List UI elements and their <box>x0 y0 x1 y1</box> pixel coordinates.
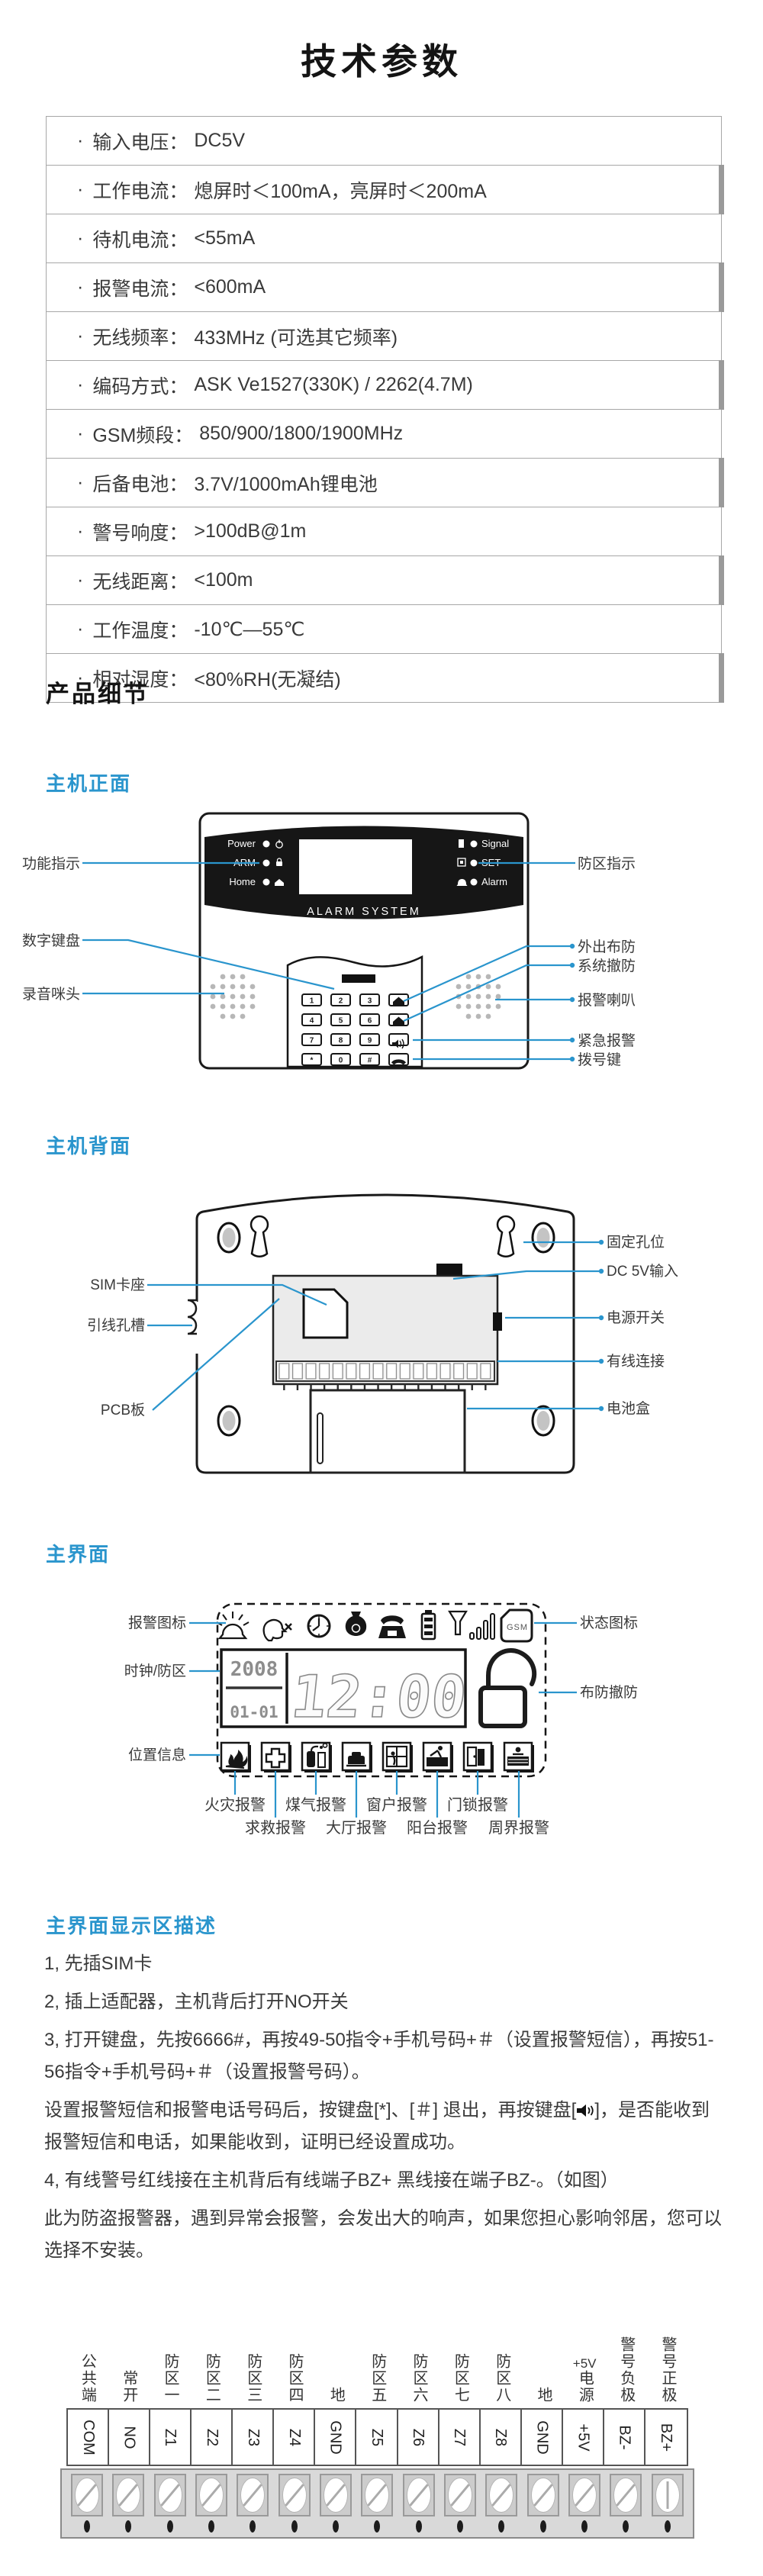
timer-icon <box>308 1615 330 1637</box>
table-row: ·报警电流：<600mA <box>47 262 721 311</box>
spec-value: 3.7V/1000mAh锂电池 <box>194 469 377 497</box>
key-hash: # <box>368 1057 372 1065</box>
terminal-screw <box>191 2470 232 2537</box>
terminal-diagram: 公共端 常开 防区一 防区二 防区三 防区四 地 防区五 防区六 防区七 防区八… <box>60 2326 694 2539</box>
fire-alarm-icon <box>221 1743 251 1773</box>
key-7: 7 <box>310 1037 314 1045</box>
callout-sim-holder: SIM卡座 <box>90 1277 145 1293</box>
table-row: ·GSM频段：850/900/1800/1900MHz <box>47 409 721 458</box>
instruction-step-4: 4, 有线警号红线接在主机背后有线端子BZ+ 黑线接在端子BZ-。（如图） <box>44 2165 722 2197</box>
lcd-date: 01-01 <box>230 1703 278 1721</box>
callout-zone-indicators: 防区指示 <box>578 855 636 872</box>
row-bullet: · <box>77 325 83 347</box>
callout-function-indicators: 功能指示 <box>22 855 80 872</box>
set-led <box>471 860 478 867</box>
key-9: 9 <box>368 1037 372 1045</box>
terminal-pin: Z4 <box>274 2410 315 2465</box>
section-heading-front: 主机正面 <box>46 768 131 797</box>
battery-icon <box>422 1610 435 1639</box>
power-led <box>263 841 270 848</box>
callout-pcb: PCB板 <box>101 1402 145 1418</box>
zone-label-gas: 煤气报警 <box>285 1796 346 1814</box>
dc-input-jack <box>436 1264 462 1276</box>
callout-dots <box>570 944 575 1061</box>
section-heading-back: 主机背面 <box>46 1131 131 1159</box>
callout-alarm-speaker: 报警喇叭 <box>578 992 636 1009</box>
instruction-step-1: 1, 先插SIM卡 <box>44 1948 722 1980</box>
spec-value: DC5V <box>194 130 245 152</box>
signal-led <box>471 841 478 848</box>
perimeter-alarm-icon <box>504 1743 534 1773</box>
zone-label-sos: 求救报警 <box>245 1819 306 1837</box>
sos-alarm-icon <box>262 1743 291 1773</box>
page-title: 技术参数 <box>0 32 763 85</box>
terminal-cn-label: 防区一 <box>163 2353 178 2404</box>
row-bullet: · <box>77 227 83 250</box>
callout-dc-input: DC 5V输入 <box>607 1263 678 1280</box>
terminal-cn-label: 防区六 <box>411 2353 427 2404</box>
gas-alarm-icon <box>302 1743 332 1773</box>
key-6: 6 <box>368 1017 372 1026</box>
terminal-cn-label: 防区五 <box>369 2353 385 2404</box>
terminal-pin: Z2 <box>192 2410 233 2465</box>
terminal-screw <box>356 2470 398 2537</box>
terminal-cn-label: 防区三 <box>245 2353 260 2404</box>
callout-dots <box>599 1240 604 1411</box>
terminal-cn-label: +5V电源 <box>573 2357 597 2404</box>
instruction-step-3: 3, 打开键盘，先按6666#，再按49-50指令+手机号码+＃（设置报警短信）… <box>44 2024 722 2088</box>
terminal-pin: Z6 <box>398 2410 439 2465</box>
spec-label: 后备电池： <box>92 469 188 497</box>
zone-label-hall: 大厅报警 <box>326 1819 387 1837</box>
spec-value: <55mA <box>194 227 255 250</box>
terminal-pin: COM <box>68 2410 109 2465</box>
row-bullet: · <box>77 276 83 298</box>
brand-text: ALARM SYSTEM <box>307 906 421 918</box>
instruction-step-2: 2, 插上适配器，主机背后打开NO开关 <box>44 1986 722 2018</box>
instructions-block: 1, 先插SIM卡 2, 插上适配器，主机背后打开NO开关 3, 打开键盘，先按… <box>44 1948 722 2273</box>
spec-value: <80%RH(无凝结) <box>194 665 340 692</box>
spec-value: >100dB@1m <box>194 520 306 543</box>
key-1: 1 <box>310 997 314 1006</box>
spec-label: GSM频段： <box>92 420 193 448</box>
alarm-host-back: SIM卡座 引线孔槽 PCB板 固定孔位 DC 5V输入 电源开关 有线连接 电… <box>87 1195 678 1473</box>
key-5: 5 <box>339 1017 343 1026</box>
gsm-sim-icon: GSM <box>501 1610 532 1641</box>
spec-value: 433MHz (可选其它频率) <box>194 323 398 350</box>
terminal-pin: GND <box>522 2410 563 2465</box>
led-label-signal: Signal <box>481 838 509 849</box>
signal-icon <box>459 839 464 848</box>
led-label-power: Power <box>227 838 256 849</box>
callout-arm-disarm: 布防撤防 <box>580 1684 638 1701</box>
table-row: ·警号响度：>100dB@1m <box>47 507 721 555</box>
alarm-host-front: Power ARM Home Signal SET <box>22 813 636 1068</box>
window-alarm-icon <box>383 1743 413 1773</box>
terminal-pin: BZ+ <box>645 2410 687 2465</box>
door-lock-alarm-icon <box>464 1743 494 1773</box>
spec-label: 无线距离： <box>92 567 188 594</box>
callout-system-disarm: 系统撤防 <box>578 958 636 974</box>
table-row: ·待机电流：<55mA <box>47 214 721 262</box>
table-row: ·后备电池：3.7V/1000mAh锂电池 <box>47 458 721 507</box>
zone-label-fire: 火灾报警 <box>204 1796 266 1814</box>
zone-label-window: 窗户报警 <box>366 1796 427 1814</box>
terminal-screw <box>108 2470 149 2537</box>
terminal-cn-label: 防区二 <box>204 2353 219 2404</box>
callout-battery-box: 电池盒 <box>607 1400 650 1417</box>
callout-numeric-keypad: 数字键盘 <box>22 932 80 949</box>
terminal-screw <box>564 2470 605 2537</box>
zone-label-balcony: 阳台报警 <box>407 1819 468 1837</box>
row-bullet: · <box>77 423 83 445</box>
spec-value: ASK Ve1527(330K) / 2262(4.7M) <box>194 374 473 396</box>
spec-value: <100m <box>194 569 253 591</box>
key-2: 2 <box>339 997 343 1006</box>
terminal-cn-label: 防区四 <box>287 2353 302 2404</box>
callout-wired-connection: 有线连接 <box>607 1353 665 1370</box>
keypad-led-window <box>342 974 375 983</box>
terminal-cn-labels: 公共端 常开 防区一 防区二 防区三 防区四 地 防区五 防区六 防区七 防区八… <box>60 2326 694 2408</box>
terminal-screw <box>398 2470 439 2537</box>
terminal-pin: Z1 <box>150 2410 192 2465</box>
terminal-pin: Z3 <box>233 2410 274 2465</box>
terminal-cn-label: 地 <box>328 2387 343 2404</box>
terminal-cn-label: 公共端 <box>79 2353 95 2404</box>
speaker-icon <box>576 2103 594 2118</box>
row-bullet: · <box>77 472 83 494</box>
terminal-screw <box>66 2470 108 2537</box>
spec-table: ·输入电压：DC5V ·工作电流：熄屏时＜100mA，亮屏时＜200mA ·待机… <box>46 116 722 703</box>
terminal-pin: +5V <box>563 2410 604 2465</box>
callout-wire-slot: 引线孔槽 <box>87 1317 145 1334</box>
terminal-screw <box>605 2470 646 2537</box>
battery-box <box>311 1390 465 1473</box>
arm-led <box>263 860 270 867</box>
callout-mounting-holes: 固定孔位 <box>607 1234 665 1251</box>
callout-location-info: 位置信息 <box>128 1747 186 1763</box>
spec-label: 无线频率： <box>92 323 188 350</box>
terminal-screw <box>274 2470 315 2537</box>
spec-label: 待机电流： <box>92 225 188 253</box>
spec-label: 编码方式： <box>92 372 188 399</box>
spec-label: 工作电流： <box>92 176 188 204</box>
instruction-verify: 设置报警短信和报警电话号码后，按键盘[*]、[＃] 退出，再按键盘[]，是否能收… <box>44 2095 722 2159</box>
battery-box-slot <box>317 1413 323 1463</box>
row-bullet: · <box>77 179 83 201</box>
callout-power-switch: 电源开关 <box>607 1309 665 1326</box>
hall-alarm-icon <box>343 1743 372 1773</box>
callout-away-arm: 外出布防 <box>578 939 636 955</box>
callout-status-icons: 状态图标 <box>580 1615 638 1631</box>
product-spec-page: 技术参数 ·输入电压：DC5V ·工作电流：熄屏时＜100mA，亮屏时＜200m… <box>0 0 763 2576</box>
terminal-pin: GND <box>315 2410 356 2465</box>
spec-label: 警号响度： <box>92 518 188 546</box>
key-8: 8 <box>339 1037 343 1045</box>
row-bullet: · <box>77 569 83 591</box>
row-bullet: · <box>77 374 83 396</box>
back-panel-diagram: SIM卡座 引线孔槽 PCB板 固定孔位 DC 5V输入 电源开关 有线连接 电… <box>0 1175 763 1480</box>
zone-label-perimeter: 周界报警 <box>488 1819 549 1837</box>
terminal-screw <box>523 2470 564 2537</box>
key-3: 3 <box>368 997 372 1006</box>
keypad-panel <box>288 957 422 1067</box>
key-star: * <box>311 1057 314 1065</box>
spec-label: 工作温度： <box>92 616 188 643</box>
terminal-cn-label: 防区八 <box>494 2353 509 2404</box>
key-4: 4 <box>310 1017 314 1026</box>
terminal-pin: Z5 <box>356 2410 398 2465</box>
key-0: 0 <box>339 1057 343 1065</box>
row-bullet: · <box>77 520 83 543</box>
row-bullet: · <box>77 130 83 152</box>
table-row: ·工作电流：熄屏时＜100mA，亮屏时＜200mA <box>47 165 721 214</box>
spec-value: -10℃—55℃ <box>194 618 304 641</box>
terminal-cn-label: 警号负极 <box>618 2336 633 2404</box>
lcd-interface-diagram: GSM 2008 01-01 12:00 <box>0 1591 763 1843</box>
callout-dial-key: 拨号键 <box>578 1051 621 1068</box>
led-label-home: Home <box>229 876 256 887</box>
lcd-screen <box>299 839 412 894</box>
terminal-screw <box>481 2470 522 2537</box>
power-switch <box>493 1312 502 1331</box>
table-row: ·编码方式：ASK Ve1527(330K) / 2262(4.7M) <box>47 360 721 409</box>
alarm-led <box>471 879 478 886</box>
section-heading-desc: 主界面显示区描述 <box>46 1911 217 1939</box>
terminal-screw <box>150 2470 191 2537</box>
terminal-pin-row: COM NO Z1 Z2 Z3 Z4 GND Z5 Z6 Z7 Z8 GND +… <box>66 2408 688 2466</box>
terminal-cn-label: 常开 <box>121 2370 136 2404</box>
terminal-screw <box>232 2470 273 2537</box>
spec-value: 850/900/1800/1900MHz <box>199 423 403 445</box>
section-heading-details: 产品细节 <box>46 675 150 709</box>
row-bullet: · <box>77 618 83 640</box>
spec-value: <600mA <box>194 276 266 298</box>
telephone-icon <box>378 1615 406 1638</box>
lcd-year: 2008 <box>230 1658 278 1681</box>
callout-clock-zone: 时钟/防区 <box>124 1663 186 1679</box>
zone-label-door-lock: 门锁报警 <box>447 1796 508 1814</box>
balcony-alarm-icon <box>423 1743 453 1773</box>
callout-alarm-icons: 报警图标 <box>128 1615 186 1631</box>
terminal-screw <box>315 2470 356 2537</box>
svg-text:GSM: GSM <box>507 1623 528 1632</box>
terminal-pin: NO <box>109 2410 150 2465</box>
home-led <box>263 879 270 886</box>
terminal-screw-strip <box>60 2468 694 2539</box>
spec-label: 输入电压： <box>92 127 188 155</box>
instruction-note: 此为防盗报警器，遇到异常会报警，会发出大的响声，如果您担心影响邻居，您可以选择不… <box>44 2203 722 2267</box>
spec-value: 熄屏时＜100mA，亮屏时＜200mA <box>194 176 486 204</box>
led-label-alarm: Alarm <box>481 876 507 887</box>
lcd-time: 12:00 <box>288 1663 470 1731</box>
terminal-cn-label: 警号正极 <box>660 2336 675 2404</box>
table-row: ·无线频率：433MHz (可选其它频率) <box>47 311 721 360</box>
terminal-cn-label: 防区七 <box>452 2353 468 2404</box>
front-panel-diagram: Power ARM Home Signal SET <box>0 801 763 1080</box>
callout-recording-mic: 录音咪头 <box>22 986 80 1003</box>
section-heading-ui: 主界面 <box>46 1539 110 1567</box>
table-row: ·工作温度：-10℃—55℃ <box>47 604 721 653</box>
table-row: ·输入电压：DC5V <box>47 117 721 165</box>
terminal-cn-label: 地 <box>536 2387 551 2404</box>
spec-label: 报警电流： <box>92 274 188 301</box>
terminal-screw <box>647 2470 688 2537</box>
table-row: ·无线距离：<100m <box>47 555 721 604</box>
terminal-pin: Z7 <box>439 2410 481 2465</box>
terminal-pin: Z8 <box>481 2410 522 2465</box>
callout-emergency-alarm: 紧急报警 <box>578 1032 636 1049</box>
terminal-screw <box>439 2470 481 2537</box>
terminal-pin: BZ- <box>604 2410 645 2465</box>
